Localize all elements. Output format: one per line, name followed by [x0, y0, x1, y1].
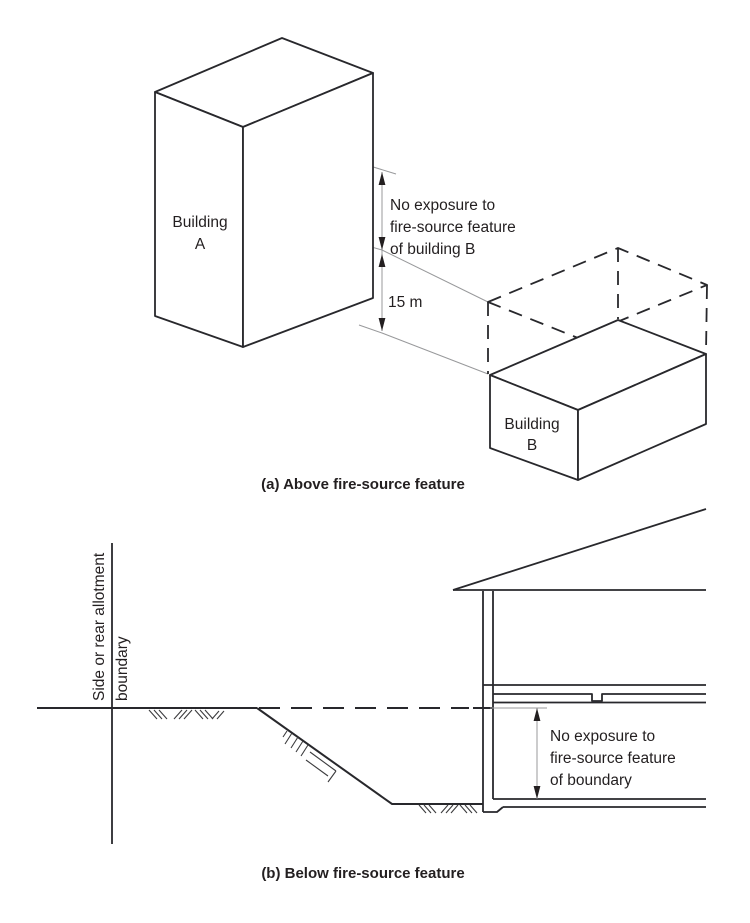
figure-a: Building A No exposure to fire-source fe…: [155, 38, 707, 493]
annotation-b-line1: No exposure to: [550, 728, 655, 745]
footing-edge: [483, 807, 503, 812]
building-b-outline: [490, 320, 706, 480]
building-a-label-line2: A: [195, 236, 206, 253]
arrow-down-icon: [534, 786, 541, 799]
fire-source-feature-diagram: Building A No exposure to fire-source fe…: [0, 0, 750, 923]
figure-b: Side or rear allotment boundary No expos…: [37, 509, 706, 882]
dimension-b: [490, 708, 547, 799]
arrow-down-icon: [379, 318, 386, 331]
diagram-page: Building A No exposure to fire-source fe…: [0, 0, 750, 923]
annotation-a-line2: fire-source feature: [390, 219, 516, 236]
figure-b-caption: (b) Below fire-source feature: [261, 865, 464, 882]
building-b-label-line1: Building: [504, 416, 559, 433]
arrow-up-icon: [379, 172, 386, 185]
roof-slope-line: [453, 509, 706, 590]
annotation-b-line3: of boundary: [550, 772, 632, 789]
building-b-label-line2: B: [527, 437, 537, 454]
arrow-up-icon: [379, 254, 386, 267]
building-b-dashed-top-face: [488, 248, 707, 338]
excavation-floor-hatch: [419, 805, 477, 813]
upper-floor-line-with-notch: [493, 694, 706, 701]
dimension-label-15m: 15 m: [388, 294, 422, 311]
building-b-dashed-edge-right: [706, 285, 707, 353]
building-a-outline: [155, 38, 373, 347]
boundary-label-line1: Side or rear allotment: [91, 552, 108, 701]
boundary-label-line2: boundary: [114, 636, 131, 701]
annotation-a-line1: No exposure to: [390, 197, 495, 214]
annotation-a-line3: of building B: [390, 241, 475, 258]
annotation-b-line2: fire-source feature: [550, 750, 676, 767]
projection-line-bottom: [359, 325, 488, 374]
excavation-slope: [257, 708, 483, 804]
figure-a-caption: (a) Above fire-source feature: [261, 476, 465, 493]
slope-hatch: [283, 731, 336, 782]
arrow-down-icon: [379, 237, 386, 250]
arrow-up-icon: [534, 708, 541, 721]
building-a-label-line1: Building: [172, 214, 227, 231]
ground-hatch-boundary: [149, 710, 224, 719]
